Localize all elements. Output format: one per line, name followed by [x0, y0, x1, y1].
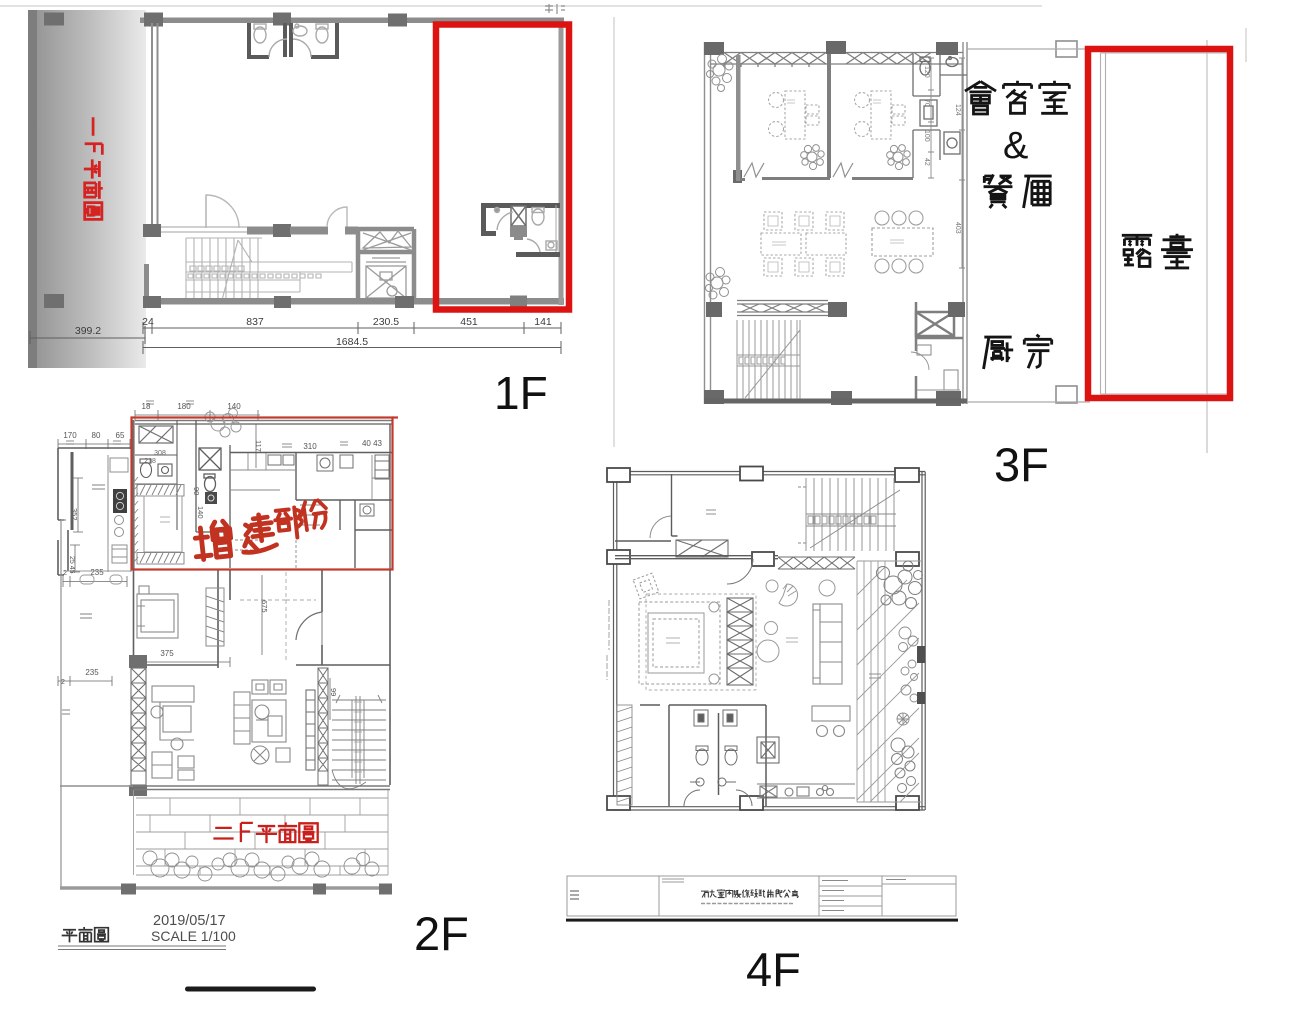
svg-text:65: 65 [116, 431, 125, 440]
svg-text:230.5: 230.5 [373, 316, 399, 328]
svg-text:70: 70 [923, 99, 930, 107]
svg-text:403: 403 [954, 222, 961, 234]
svg-text:218: 218 [144, 458, 156, 465]
svg-text:310: 310 [303, 442, 317, 451]
svg-text:235: 235 [85, 668, 99, 677]
svg-text:2: 2 [63, 568, 67, 577]
svg-text:117: 117 [254, 440, 263, 452]
svg-text:1F: 1F [494, 367, 548, 419]
svg-text:451: 451 [460, 316, 478, 328]
svg-text:2019/05/17: 2019/05/17 [153, 913, 226, 929]
svg-text:90: 90 [192, 487, 201, 495]
svg-text:170: 170 [63, 431, 77, 440]
svg-text:2F: 2F [414, 907, 469, 960]
svg-text:42: 42 [923, 158, 930, 166]
svg-text:124: 124 [954, 104, 961, 116]
svg-text:99: 99 [329, 688, 338, 696]
svg-text:180: 180 [177, 402, 191, 411]
svg-text:141: 141 [534, 316, 552, 328]
svg-text:308: 308 [154, 450, 166, 457]
svg-text:24: 24 [142, 316, 154, 328]
svg-text:140: 140 [196, 506, 205, 519]
svg-text:SCALE 1/100: SCALE 1/100 [151, 928, 236, 944]
svg-text:4F: 4F [746, 943, 801, 996]
svg-text:18: 18 [142, 402, 151, 411]
svg-text:2: 2 [61, 679, 65, 686]
svg-text:1684.5: 1684.5 [336, 336, 368, 348]
svg-text:3F: 3F [994, 438, 1049, 491]
svg-text:375: 375 [160, 649, 174, 658]
svg-text:675: 675 [260, 600, 269, 613]
svg-text:120: 120 [923, 66, 930, 78]
svg-text:399.2: 399.2 [75, 325, 101, 337]
svg-text:&: & [1003, 125, 1028, 167]
svg-text:80: 80 [92, 431, 101, 440]
svg-text:837: 837 [246, 316, 264, 328]
svg-text:100: 100 [923, 130, 930, 142]
svg-text:40 43: 40 43 [362, 439, 383, 448]
